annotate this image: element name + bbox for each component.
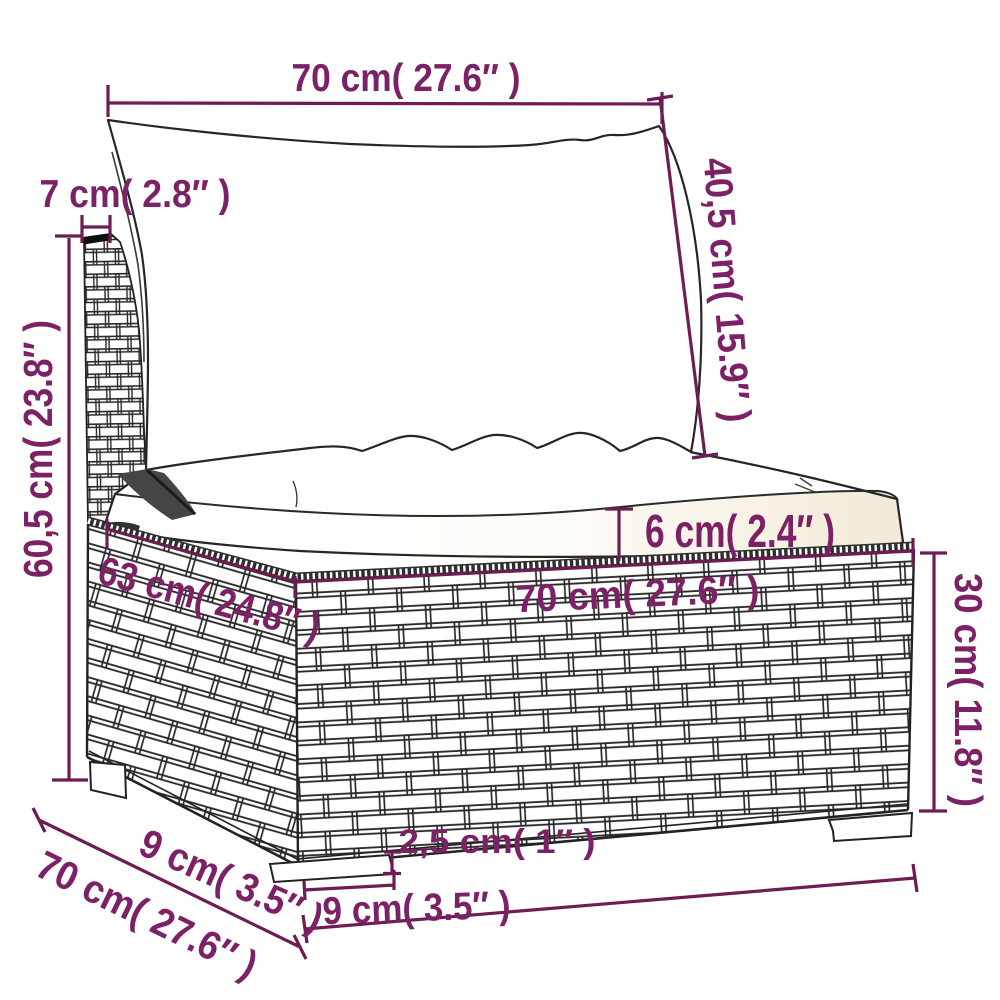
svg-text:70 cm( 27.6″ ): 70 cm( 27.6″ ) [292, 57, 521, 100]
svg-text:60,5 cm( 23.8″ ): 60,5 cm( 23.8″ ) [15, 320, 61, 578]
svg-text:7 cm( 2.8″ ): 7 cm( 2.8″ ) [40, 173, 231, 216]
svg-text:9 cm( 3.5″ ): 9 cm( 3.5″ ) [322, 884, 511, 934]
svg-text:6 cm( 2.4″ ): 6 cm( 2.4″ ) [645, 505, 835, 557]
svg-text:2,5 cm( 1″ ): 2,5 cm( 1″ ) [399, 823, 596, 861]
svg-text:30 cm( 11.8″ ): 30 cm( 11.8″ ) [946, 573, 989, 807]
